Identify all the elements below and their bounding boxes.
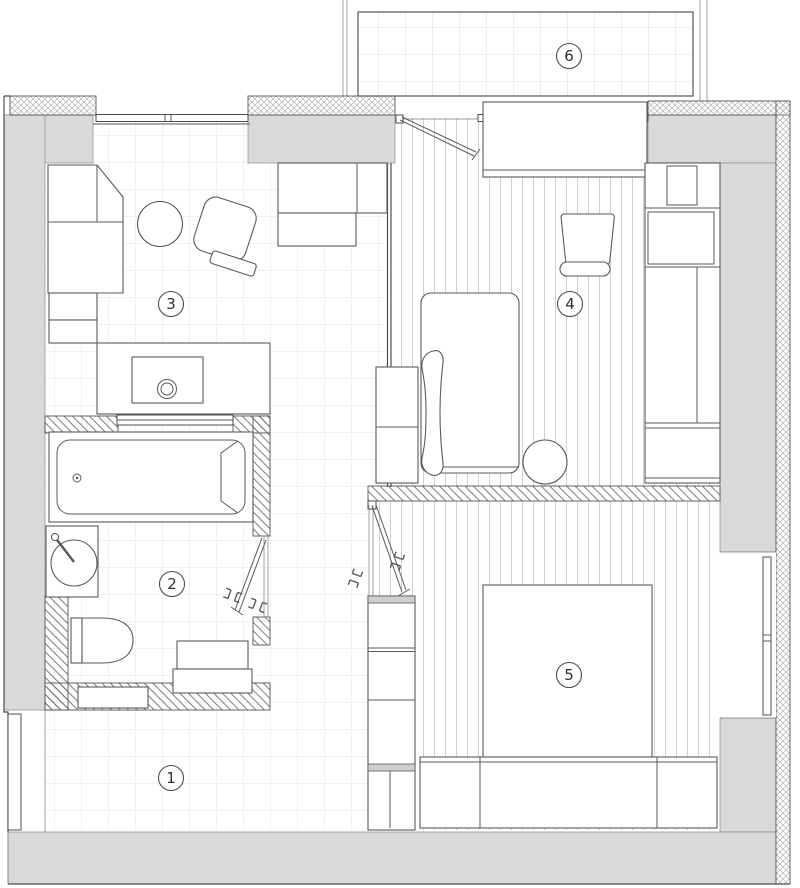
wall-bottom-band xyxy=(8,832,776,884)
wardrobe-bedroom xyxy=(645,163,720,483)
room-label-2: 2 xyxy=(160,572,185,597)
pouf xyxy=(523,440,567,484)
wall-left-strip xyxy=(4,115,45,710)
floor-plan-svg: 1 2 3 4 5 6 xyxy=(0,0,800,888)
coffee-table xyxy=(138,202,183,247)
nightstand xyxy=(376,367,418,483)
svg-text:3: 3 xyxy=(166,295,176,313)
svg-text:2: 2 xyxy=(167,575,177,593)
svg-text:1: 1 xyxy=(166,769,176,787)
entry-door[interactable] xyxy=(8,710,45,832)
room-label-4: 4 xyxy=(558,292,583,317)
floor-plan: 1 2 3 4 5 6 xyxy=(0,0,800,888)
toilet xyxy=(71,618,133,663)
wall-top-center-block xyxy=(248,115,395,163)
sofa xyxy=(48,165,123,293)
bed-single xyxy=(421,293,519,475)
desk-chair xyxy=(560,214,614,276)
cap-top-center xyxy=(248,96,395,115)
wall-right-strip-lower xyxy=(720,718,776,832)
desk xyxy=(483,102,647,177)
room-label-3: 3 xyxy=(159,292,184,317)
svg-text:4: 4 xyxy=(565,295,575,313)
bathroom-wall-right-lower xyxy=(253,617,270,645)
bathroom-wall-niche xyxy=(78,687,148,708)
svg-text:6: 6 xyxy=(564,47,574,65)
cap-top-left xyxy=(10,96,96,115)
kitchen-counter xyxy=(97,343,270,414)
room-label-1: 1 xyxy=(159,766,184,791)
washbasin xyxy=(51,540,97,586)
faucet xyxy=(52,534,59,541)
cap-top-right xyxy=(648,101,790,115)
dresser-bottom xyxy=(420,757,717,828)
wall-top-right-block xyxy=(648,115,776,163)
washbasin-vanity xyxy=(46,526,98,597)
svg-text:5: 5 xyxy=(564,666,574,684)
room-label-5: 5 xyxy=(557,663,582,688)
kitchen-cabinets-left xyxy=(49,293,97,343)
cap-right-strip xyxy=(776,101,790,884)
wall-right-strip-upper xyxy=(720,163,776,552)
bathroom-wall-top-left xyxy=(45,416,118,433)
balcony-floor xyxy=(358,12,693,96)
room-label-6: 6 xyxy=(557,44,582,69)
window-bedroom-2 xyxy=(720,552,776,718)
wall-bedroom-divider xyxy=(368,486,720,501)
bathroom-cabinet xyxy=(173,641,252,693)
bathtub xyxy=(49,432,253,522)
bathroom-wall-right-upper xyxy=(253,416,270,536)
storage-column xyxy=(368,596,415,830)
bathroom-glass-screen xyxy=(117,415,233,425)
